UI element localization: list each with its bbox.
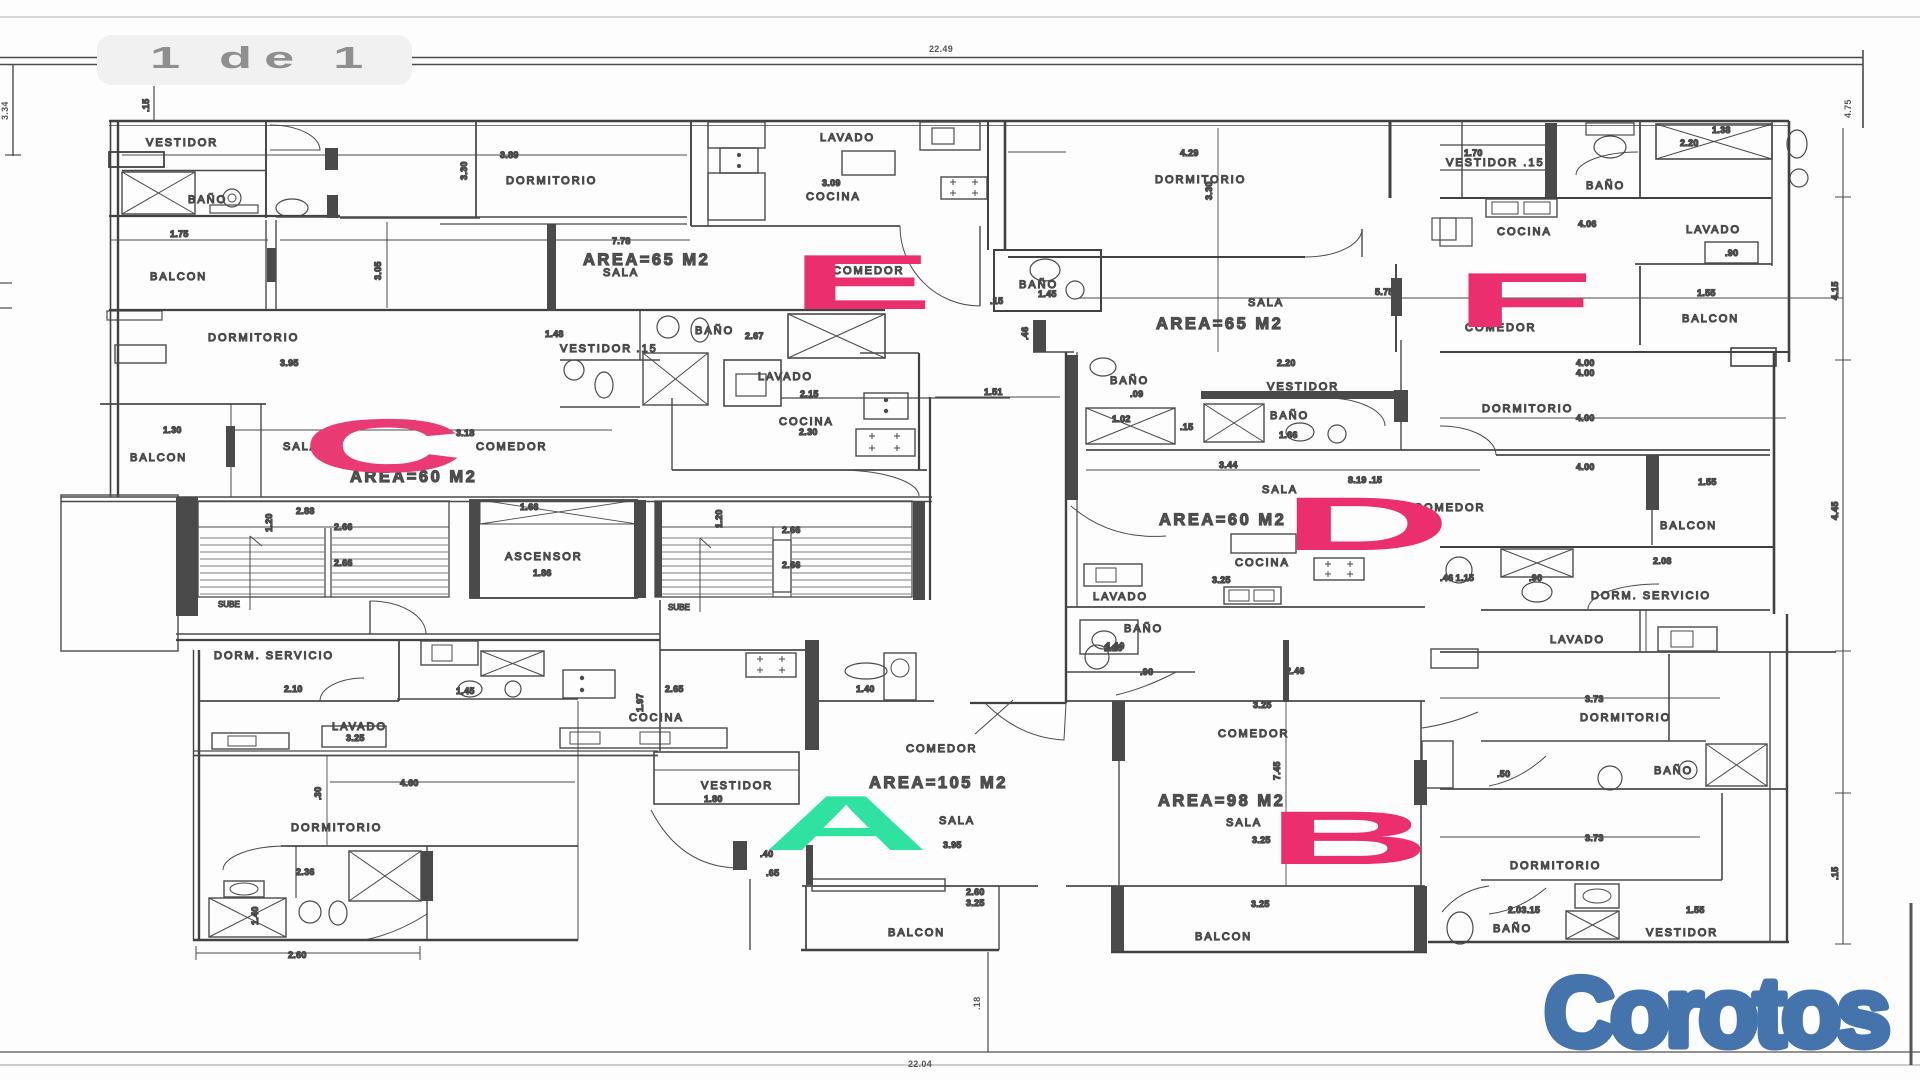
svg-text:BALCON: BALCON: [888, 927, 945, 939]
svg-text:LAVADO: LAVADO: [758, 371, 813, 383]
svg-text:BAÑO: BAÑO: [1110, 374, 1149, 387]
svg-text:LAVADO: LAVADO: [1686, 224, 1741, 236]
svg-text:BAÑO: BAÑO: [1586, 179, 1625, 192]
svg-text:.46: .46: [1020, 327, 1030, 340]
svg-text:3.73: 3.73: [1585, 833, 1604, 843]
svg-text:3.95: 3.95: [280, 358, 299, 368]
svg-text:2.67: 2.67: [745, 331, 764, 341]
svg-text:COMEDOR: COMEDOR: [476, 441, 547, 453]
svg-text:2.88: 2.88: [296, 506, 315, 516]
svg-text:C: C: [301, 403, 463, 488]
svg-text:2.10: 2.10: [284, 684, 303, 694]
svg-text:1.66: 1.66: [520, 502, 539, 512]
svg-text:2.66: 2.66: [334, 558, 353, 568]
svg-text:1 de 1: 1 de 1: [150, 41, 375, 75]
svg-text:1.10: 1.10: [1106, 641, 1125, 651]
svg-text:.15: .15: [1830, 867, 1840, 880]
svg-text:COMEDOR: COMEDOR: [1218, 728, 1289, 740]
svg-text:SUBE: SUBE: [218, 600, 240, 609]
svg-text:COMEDOR: COMEDOR: [906, 743, 977, 755]
svg-text:1.20: 1.20: [264, 513, 274, 532]
svg-text:4.15: 4.15: [1830, 281, 1840, 300]
svg-text:3.30: 3.30: [1204, 181, 1214, 200]
svg-text:3.05: 3.05: [373, 261, 383, 280]
svg-text:3.95: 3.95: [943, 840, 962, 850]
svg-text:LAVADO: LAVADO: [820, 132, 875, 144]
svg-text:3.30: 3.30: [459, 161, 469, 180]
svg-text:1.66: 1.66: [1279, 430, 1298, 440]
svg-text:2.65: 2.65: [665, 684, 684, 694]
svg-text:.50: .50: [1497, 769, 1510, 779]
svg-text:3.09: 3.09: [822, 178, 841, 188]
svg-text:Corotos: Corotos: [1544, 957, 1887, 1067]
svg-text:AREA=65 M2: AREA=65 M2: [1156, 315, 1283, 333]
svg-text:DORM. SERVICIO: DORM. SERVICIO: [214, 650, 334, 662]
svg-text:4.45: 4.45: [1830, 501, 1840, 520]
svg-text:SALA: SALA: [939, 815, 975, 827]
svg-text:BAÑO: BAÑO: [1124, 622, 1163, 635]
svg-text:1.40: 1.40: [856, 684, 875, 694]
svg-text:2.20: 2.20: [1277, 358, 1296, 368]
svg-text:VESTIDOR: VESTIDOR: [1646, 927, 1718, 939]
svg-text:.18: .18: [972, 997, 982, 1010]
svg-text:F: F: [1453, 257, 1595, 344]
svg-text:VESTIDOR: VESTIDOR: [146, 137, 218, 149]
svg-text:BAÑO: BAÑO: [1493, 922, 1532, 935]
svg-text:2.60: 2.60: [288, 950, 307, 960]
svg-text:3.25: 3.25: [346, 733, 365, 743]
svg-text:BALCON: BALCON: [150, 271, 207, 283]
svg-text:LAVADO: LAVADO: [1550, 634, 1605, 646]
svg-text:SUBE: SUBE: [668, 603, 690, 612]
svg-text:1.51: 1.51: [984, 387, 1003, 397]
svg-text:BALCON: BALCON: [130, 452, 187, 464]
svg-text:.15: .15: [990, 296, 1003, 306]
svg-text:2.60: 2.60: [966, 887, 985, 897]
svg-text:.46 1.15: .46 1.15: [1440, 573, 1474, 583]
svg-text:2.36: 2.36: [296, 867, 315, 877]
svg-text:1.48: 1.48: [545, 329, 564, 339]
svg-text:4.00: 4.00: [1576, 358, 1595, 368]
svg-text:3.25: 3.25: [1212, 575, 1231, 585]
svg-text:22.04: 22.04: [908, 1059, 932, 1069]
svg-text:SALA: SALA: [1226, 817, 1262, 829]
svg-text:B: B: [1266, 796, 1431, 881]
svg-text:1.70: 1.70: [1464, 148, 1483, 158]
svg-text:SALA: SALA: [1248, 297, 1284, 309]
svg-text:1.02: 1.02: [1112, 414, 1131, 424]
svg-text:4.00: 4.00: [1576, 462, 1595, 472]
svg-text:DORMITORIO: DORMITORIO: [1482, 403, 1573, 415]
svg-text:.15: .15: [141, 99, 151, 112]
svg-text:D: D: [1281, 482, 1452, 567]
svg-text:BAÑO: BAÑO: [1270, 409, 1309, 422]
svg-text:DORM. SERVICIO: DORM. SERVICIO: [1591, 590, 1711, 602]
svg-text:3.73: 3.73: [1585, 694, 1604, 704]
svg-text:4.29: 4.29: [1180, 148, 1199, 158]
svg-text:4.00: 4.00: [1576, 368, 1595, 378]
svg-text:22.49: 22.49: [929, 44, 953, 54]
svg-text:ASCENSOR: ASCENSOR: [505, 551, 583, 563]
svg-text:.09: .09: [1130, 389, 1143, 399]
svg-text:.90: .90: [1725, 248, 1738, 258]
svg-text:BALCON: BALCON: [1660, 520, 1717, 532]
svg-text:SALA: SALA: [603, 267, 639, 279]
svg-text:4.06: 4.06: [1578, 219, 1597, 229]
svg-text:1.55: 1.55: [1697, 288, 1716, 298]
svg-text:3.25: 3.25: [1251, 899, 1270, 909]
svg-text:3.25: 3.25: [1253, 700, 1272, 710]
svg-text:2.08: 2.08: [1653, 556, 1672, 566]
svg-text:1.75: 1.75: [170, 229, 189, 239]
svg-text:2.03.15: 2.03.15: [1508, 905, 1540, 915]
svg-text:DORMITORIO: DORMITORIO: [1155, 174, 1246, 186]
svg-text:1.20: 1.20: [714, 509, 724, 528]
svg-text:7.45: 7.45: [1272, 761, 1282, 780]
svg-text:4.60: 4.60: [400, 778, 419, 788]
svg-text:DORMITORIO: DORMITORIO: [1510, 860, 1601, 872]
svg-text:2.66: 2.66: [334, 522, 353, 532]
svg-text:7.78: 7.78: [612, 236, 631, 246]
svg-text:DORMITORIO: DORMITORIO: [1580, 712, 1671, 724]
svg-text:VESTIDOR .15: VESTIDOR .15: [1446, 157, 1545, 169]
svg-text:5.75: 5.75: [1375, 287, 1394, 297]
svg-text:1.97: 1.97: [635, 693, 645, 712]
svg-text:AREA=60 M2: AREA=60 M2: [1159, 511, 1286, 529]
svg-text:2.30: 2.30: [799, 427, 818, 437]
svg-text:3.44: 3.44: [1219, 460, 1238, 470]
svg-text:2.66: 2.66: [782, 560, 801, 570]
svg-text:1.40: 1.40: [250, 906, 260, 925]
svg-text:DORMITORIO: DORMITORIO: [291, 822, 382, 834]
svg-text:DORMITORIO: DORMITORIO: [506, 175, 597, 187]
svg-text:1.86: 1.86: [533, 568, 552, 578]
svg-text:COCINA: COCINA: [806, 191, 861, 203]
svg-text:2.66: 2.66: [782, 525, 801, 535]
svg-text:1.45: 1.45: [456, 686, 475, 696]
svg-text:2.20: 2.20: [1680, 138, 1699, 148]
svg-text:1.45: 1.45: [1038, 289, 1057, 299]
svg-text:1.30: 1.30: [163, 425, 182, 435]
svg-text:.65: .65: [766, 868, 779, 878]
svg-text:BAÑO: BAÑO: [1654, 764, 1693, 777]
svg-text:1.80: 1.80: [704, 794, 723, 804]
svg-text:LAVADO: LAVADO: [332, 721, 387, 733]
svg-text:3.34: 3.34: [0, 101, 10, 120]
svg-text:COCINA: COCINA: [629, 712, 684, 724]
svg-text:1.55: 1.55: [1698, 477, 1717, 487]
svg-text:4.75: 4.75: [1843, 99, 1853, 118]
svg-text:3.25: 3.25: [966, 898, 985, 908]
svg-text:DORMITORIO: DORMITORIO: [208, 332, 299, 344]
svg-text:COCINA: COCINA: [1497, 226, 1552, 238]
svg-text:.30: .30: [313, 787, 323, 800]
svg-text:.15: .15: [1180, 422, 1193, 432]
svg-text:BAÑO: BAÑO: [695, 324, 734, 337]
svg-text:1.38: 1.38: [1712, 125, 1731, 135]
svg-text:1.55: 1.55: [1686, 905, 1705, 915]
svg-text:BAÑO: BAÑO: [188, 193, 227, 206]
svg-text:A: A: [763, 780, 929, 867]
svg-text:LAVADO: LAVADO: [1093, 591, 1148, 603]
svg-text:E: E: [790, 239, 934, 326]
svg-text:BALCON: BALCON: [1195, 931, 1252, 943]
svg-text:BALCON: BALCON: [1682, 313, 1739, 325]
